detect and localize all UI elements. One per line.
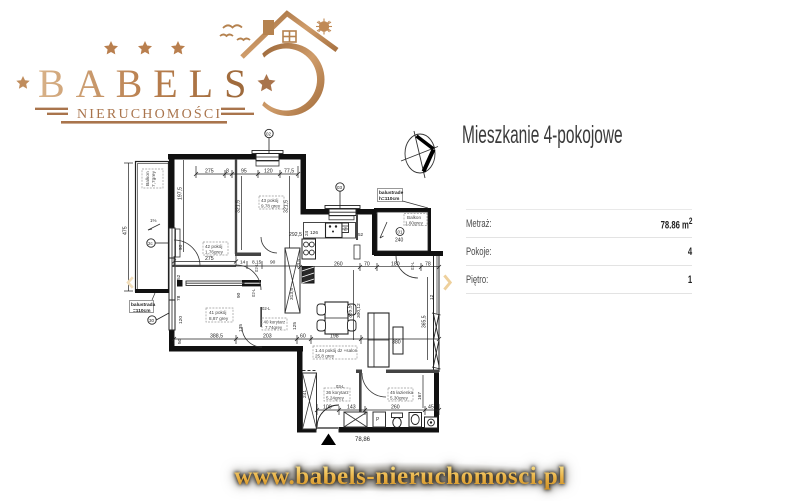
svg-text:125: 125: [292, 322, 298, 330]
svg-text:45 łazienka: 45 łazienka: [390, 390, 414, 395]
svg-text:292,5: 292,5: [289, 232, 302, 238]
svg-text:43 pokój: 43 pokój: [261, 198, 278, 203]
svg-text:260: 260: [391, 405, 400, 411]
svg-text:78,86: 78,86: [355, 437, 371, 443]
svg-text:30: 30: [149, 318, 155, 323]
svg-text:321,5: 321,5: [284, 200, 290, 213]
svg-text:275: 275: [205, 169, 214, 175]
svg-text:7,7grey: 7,7grey: [151, 170, 157, 187]
svg-text:45: 45: [428, 405, 434, 411]
svg-text:7,74grey: 7,74grey: [265, 325, 283, 330]
svg-text:100: 100: [323, 405, 332, 411]
svg-text:24: 24: [304, 230, 309, 236]
svg-text:Balkon: Balkon: [407, 215, 421, 220]
svg-text:41 pokój: 41 pokój: [209, 310, 226, 315]
svg-text:9,78 grey: 9,78 grey: [261, 204, 281, 209]
svg-text:475: 475: [123, 226, 129, 235]
svg-text:388,5: 388,5: [210, 334, 223, 340]
svg-text:40 korytarz: 40 korytarz: [264, 320, 286, 325]
svg-text:260: 260: [334, 262, 343, 268]
svg-text:2c: 2c: [148, 241, 154, 246]
svg-text:33,5: 33,5: [296, 259, 301, 268]
svg-text:95: 95: [241, 169, 247, 175]
svg-text:02-L: 02-L: [262, 306, 271, 311]
svg-text:01: 01: [398, 230, 404, 235]
svg-text:143: 143: [347, 405, 356, 411]
svg-text:25,8 grey: 25,8 grey: [315, 354, 335, 359]
svg-text:203: 203: [263, 334, 272, 340]
svg-text:14: 14: [240, 260, 246, 266]
svg-text:90: 90: [178, 244, 184, 250]
svg-text:126: 126: [310, 230, 318, 236]
svg-text:8: 8: [226, 169, 229, 175]
svg-text:36 korytarz: 36 korytarz: [326, 390, 349, 395]
svg-text:90: 90: [270, 260, 276, 266]
svg-text:198: 198: [330, 334, 339, 340]
svg-text:Balkon: Balkon: [145, 171, 151, 186]
svg-text:321,5: 321,5: [236, 200, 242, 213]
svg-text:balustrade: balustrade: [379, 190, 404, 196]
svg-text:380: 380: [392, 340, 401, 346]
svg-text:5,30grey: 5,30grey: [390, 396, 409, 401]
svg-text:365,5: 365,5: [422, 315, 428, 328]
svg-text:120: 120: [264, 169, 273, 175]
svg-text:135: 135: [238, 324, 244, 332]
svg-text:241: 241: [302, 390, 308, 398]
svg-text:240: 240: [395, 238, 404, 244]
svg-text:5,24grey: 5,24grey: [326, 396, 345, 401]
svg-text:12: 12: [429, 294, 435, 300]
svg-text:78: 78: [425, 262, 431, 268]
svg-text:197,5: 197,5: [178, 187, 184, 200]
svg-text:02-L: 02-L: [251, 288, 256, 297]
svg-text:03-L: 03-L: [336, 384, 345, 389]
svg-text:8,87 grey: 8,87 grey: [209, 316, 229, 321]
svg-text:=110cm: =110cm: [133, 308, 150, 314]
svg-text:52: 52: [176, 274, 182, 280]
svg-text:1.44 pokój dz +salon: 1.44 pokój dz +salon: [315, 348, 358, 353]
svg-text:77,5: 77,5: [284, 169, 294, 175]
svg-text:365,5: 365,5: [348, 305, 354, 318]
svg-text:02-L: 02-L: [410, 261, 415, 270]
svg-text:h=110cm: h=110cm: [379, 196, 399, 202]
svg-text:70: 70: [364, 262, 370, 268]
svg-text:02: 02: [266, 132, 272, 137]
svg-text:52: 52: [358, 232, 364, 237]
svg-text:balustrada: balustrada: [131, 302, 156, 308]
svg-text:Z: Z: [344, 227, 347, 232]
svg-text:42 pokój: 42 pokój: [205, 244, 222, 249]
svg-text:120: 120: [178, 316, 184, 324]
svg-text:03: 03: [337, 185, 343, 190]
svg-text:1%: 1%: [150, 218, 157, 223]
svg-text:8,15: 8,15: [252, 260, 262, 266]
svg-text:90: 90: [236, 292, 242, 298]
svg-text:1,76grey: 1,76grey: [205, 250, 224, 255]
svg-text:50: 50: [177, 338, 183, 344]
svg-text:1,60grey: 1,60grey: [405, 221, 424, 226]
svg-text:300,12: 300,12: [356, 303, 362, 318]
svg-text:78: 78: [176, 295, 182, 301]
svg-text:60: 60: [300, 334, 306, 340]
svg-text:275: 275: [205, 256, 214, 262]
svg-text:167: 167: [417, 392, 423, 400]
svg-text:313,5: 313,5: [289, 288, 295, 300]
